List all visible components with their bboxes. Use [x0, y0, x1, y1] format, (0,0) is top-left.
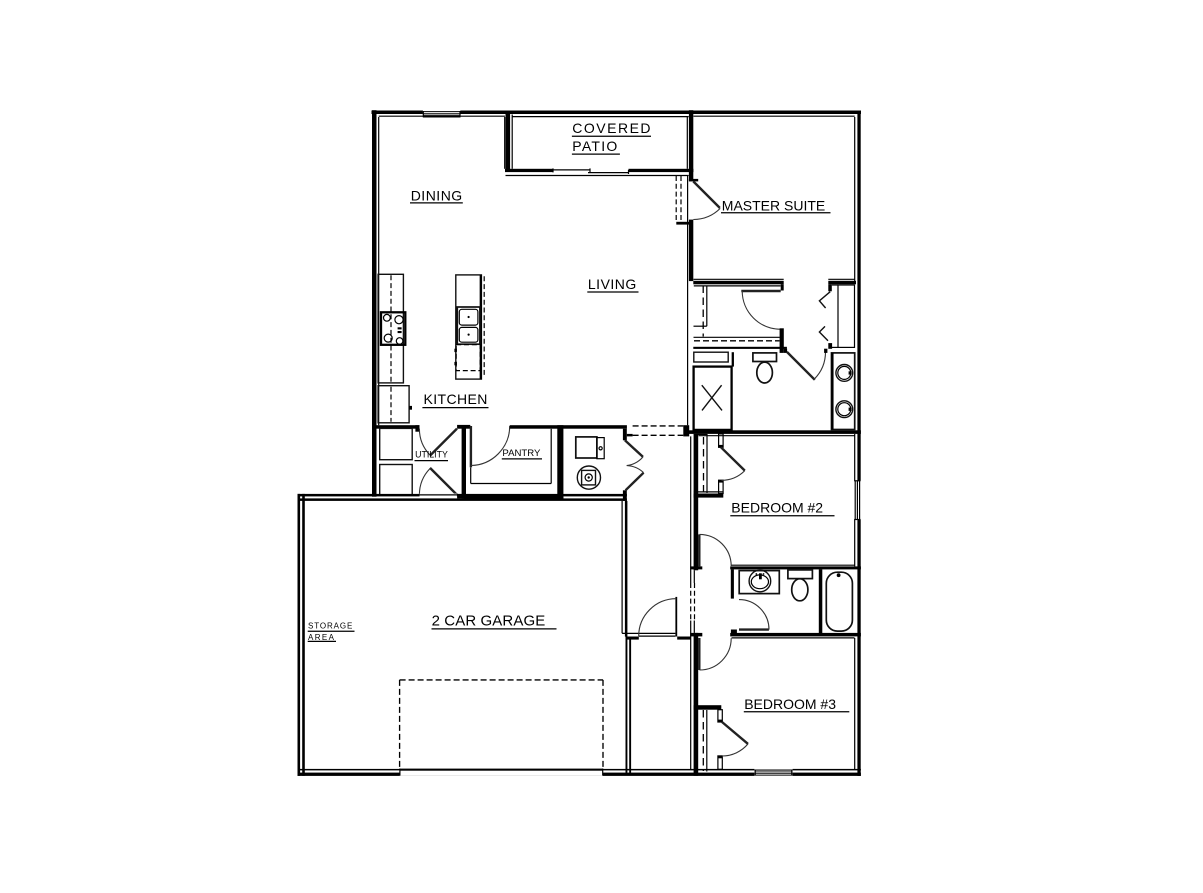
svg-text:DINING: DINING [411, 188, 463, 204]
svg-text:MASTER SUITE: MASTER SUITE [722, 197, 825, 213]
svg-text:BEDROOM #2: BEDROOM #2 [731, 500, 823, 516]
svg-text:2 CAR GARAGE: 2 CAR GARAGE [432, 613, 546, 630]
svg-text:UTILITY: UTILITY [415, 450, 448, 460]
svg-text:KITCHEN: KITCHEN [424, 391, 488, 407]
svg-text:COVERED: COVERED [572, 120, 652, 136]
svg-text:STORAGE: STORAGE [308, 622, 353, 631]
svg-text:AREA: AREA [308, 633, 335, 642]
svg-text:LIVING: LIVING [588, 276, 637, 292]
svg-text:PANTRY: PANTRY [502, 448, 541, 459]
svg-text:BEDROOM #3: BEDROOM #3 [744, 696, 836, 712]
svg-text:PATIO: PATIO [572, 138, 618, 154]
